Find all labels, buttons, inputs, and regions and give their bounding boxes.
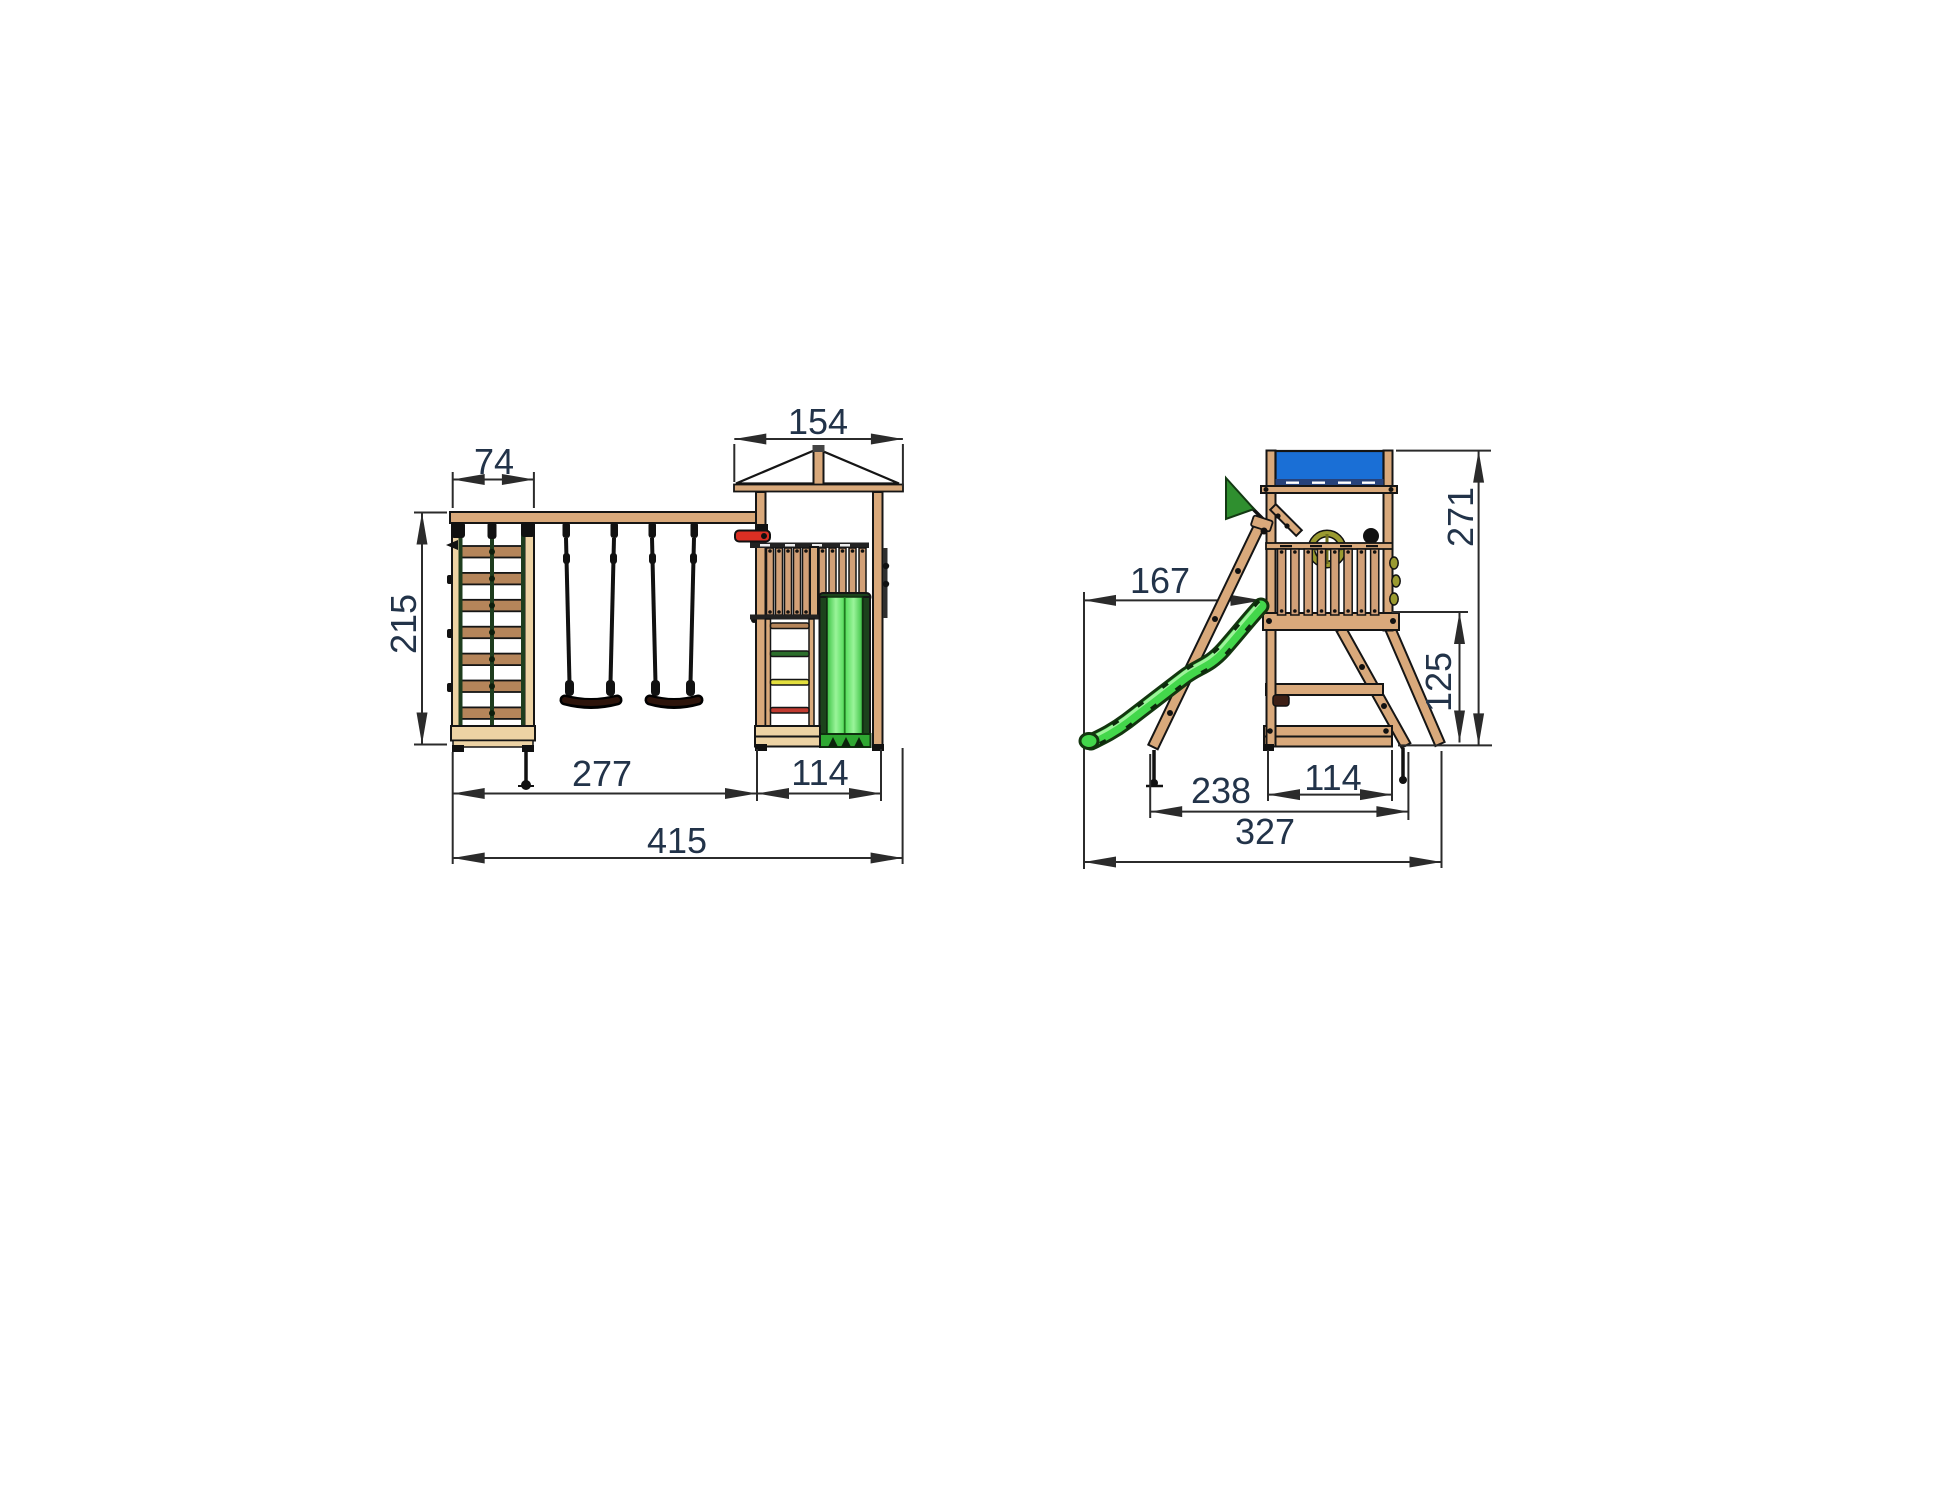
svg-text:74: 74 [474,441,514,482]
svg-text:114: 114 [791,752,848,793]
svg-text:238: 238 [1191,770,1251,811]
svg-text:154: 154 [788,401,848,442]
svg-text:167: 167 [1130,560,1190,601]
svg-text:125: 125 [1418,652,1459,712]
svg-text:415: 415 [647,820,707,861]
svg-text:114: 114 [1304,757,1361,798]
svg-text:271: 271 [1440,487,1481,547]
svg-text:327: 327 [1235,811,1295,852]
svg-text:215: 215 [383,594,424,654]
svg-text:277: 277 [572,753,632,794]
